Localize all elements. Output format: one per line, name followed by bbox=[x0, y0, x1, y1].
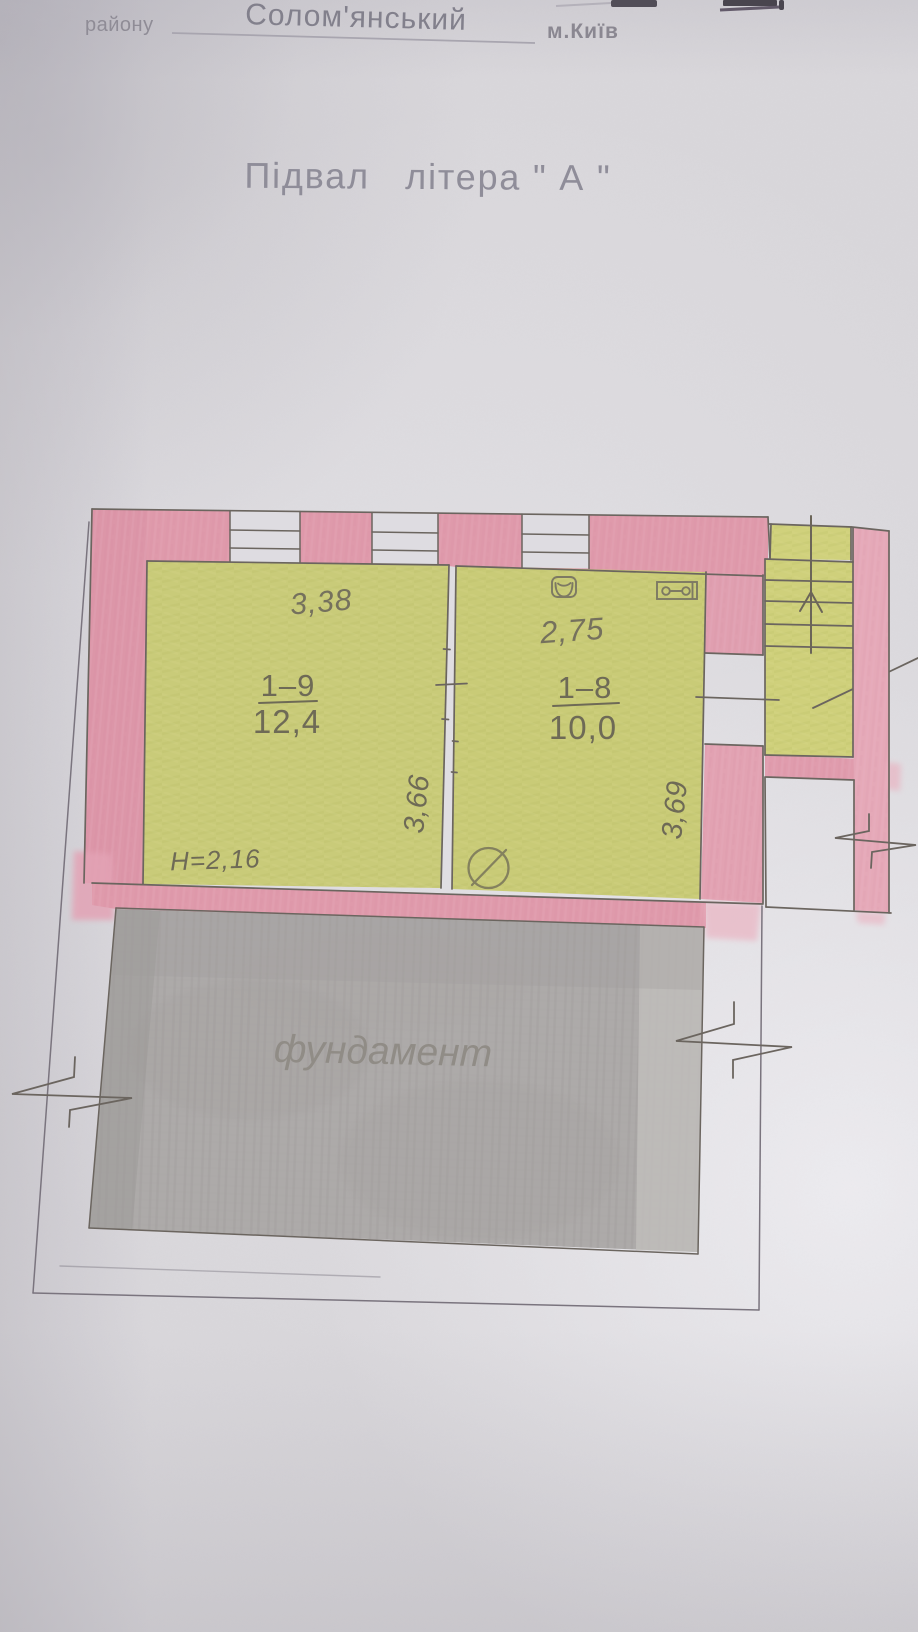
svg-text:1–9: 1–9 bbox=[261, 668, 316, 703]
svg-text:10,0: 10,0 bbox=[549, 709, 617, 746]
svg-text:3,66: 3,66 bbox=[398, 773, 436, 835]
svg-text:1–8: 1–8 bbox=[558, 670, 613, 705]
svg-text:Солом'янський: Солом'янський bbox=[245, 0, 467, 37]
svg-text:12,4: 12,4 bbox=[253, 703, 321, 740]
svg-text:фундамент: фундамент bbox=[273, 1028, 492, 1076]
svg-text:3,69: 3,69 bbox=[656, 779, 694, 840]
svg-text:Підвал літера " А ": Підвал літера " А " bbox=[244, 155, 611, 199]
svg-text:3,38: 3,38 bbox=[289, 583, 354, 621]
svg-text:м.Київ: м.Київ bbox=[547, 20, 619, 43]
svg-text:району: району bbox=[85, 14, 154, 36]
svg-text:H=2,16: H=2,16 bbox=[170, 843, 262, 876]
svg-text:2,75: 2,75 bbox=[538, 611, 606, 650]
